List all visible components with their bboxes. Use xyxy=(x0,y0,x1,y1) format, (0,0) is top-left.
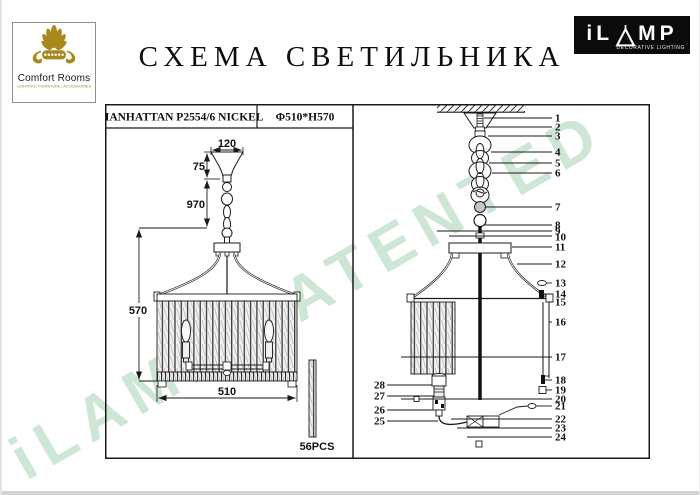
part-number: 11 xyxy=(555,242,565,254)
part-number: 25 xyxy=(374,416,386,428)
decorative-chain xyxy=(469,136,491,203)
dim-chain-length: 970 xyxy=(187,199,205,211)
page-title: СХЕМА СВЕТИЛЬНИКА xyxy=(112,41,592,74)
part-number: 7 xyxy=(555,202,561,214)
comfort-rooms-tagline: LIGHTING | FURNITURE | ACCESSORIES xyxy=(15,84,94,88)
lamp-icon xyxy=(615,25,636,48)
part-number: 28 xyxy=(374,380,386,392)
dimensions-label: Φ510*H570 xyxy=(276,112,335,124)
part-numbers-right: 1 2 3 4 5 6 7 8 9 10 11 12 13 14 15 16 1… xyxy=(555,113,567,444)
schema-sheet: iLAMP PATENTED Comfort Rooms LI xyxy=(0,0,700,495)
part-number: 6 xyxy=(555,168,561,180)
schema-drawing: MANHATTAN P2554/6 NICKEL Φ510*H570 xyxy=(105,104,650,459)
leader-lines-left xyxy=(387,385,438,421)
part-number: 17 xyxy=(555,352,567,364)
dim-canopy-width: 120 xyxy=(218,138,236,150)
part-number: 16 xyxy=(555,317,567,329)
rod-count-label: 56PCS xyxy=(300,441,335,453)
part-number: 21 xyxy=(555,401,566,413)
ilamp-letters-left: iL xyxy=(586,23,613,44)
comfort-rooms-name: Comfort Rooms xyxy=(13,73,95,84)
part-number: 15 xyxy=(555,297,567,309)
part-number: 12 xyxy=(555,259,567,271)
crown-icon xyxy=(25,23,83,67)
part-numbers-left: 25 26 27 28 xyxy=(374,380,386,428)
dim-body-height: 570 xyxy=(129,305,147,317)
part-number: 26 xyxy=(374,405,386,417)
part-number: 27 xyxy=(374,391,386,403)
dim-canopy-height: 75 xyxy=(193,161,205,173)
comfort-rooms-logo: Comfort Rooms LIGHTING | FURNITURE | ACC… xyxy=(12,22,96,103)
part-number: 3 xyxy=(555,131,561,143)
ilamp-logo: iL MP DECORATIVE LIGHTING xyxy=(574,16,690,54)
chain xyxy=(222,183,233,244)
model-label: MANHATTAN P2554/6 NICKEL xyxy=(105,112,264,124)
ilamp-letters-right: MP xyxy=(638,23,678,44)
glass-rod-sample xyxy=(309,360,316,437)
exploded-view xyxy=(387,105,553,447)
part-number: 24 xyxy=(555,432,567,444)
dim-body-width: 510 xyxy=(218,386,236,398)
